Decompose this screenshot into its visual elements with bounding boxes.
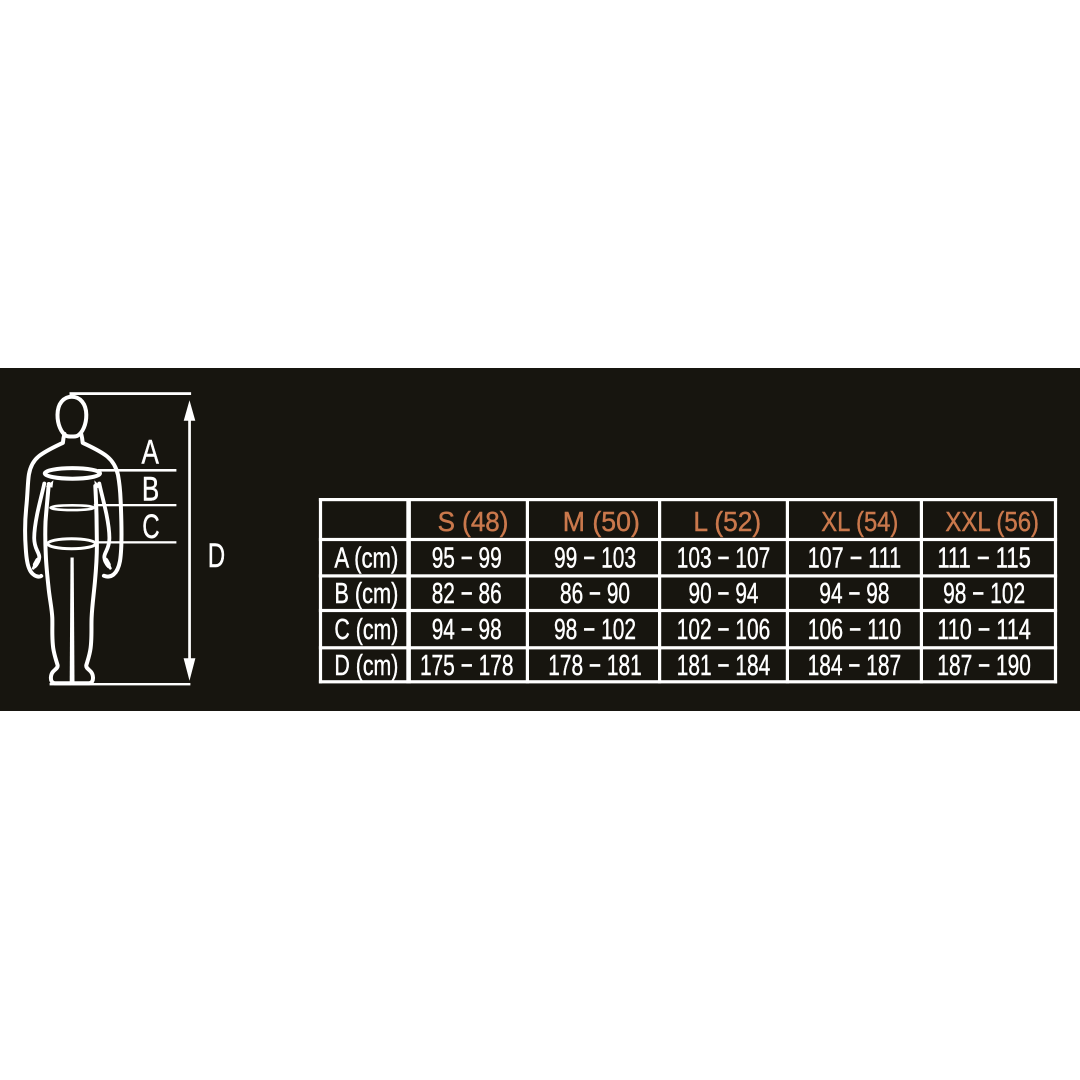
svg-text:C (cm): C (cm) xyxy=(334,614,398,646)
svg-text:S (48): S (48) xyxy=(438,506,509,537)
svg-text:90 − 94: 90 − 94 xyxy=(689,578,759,610)
svg-text:M (50): M (50) xyxy=(563,506,640,537)
svg-text:95 − 99: 95 − 99 xyxy=(432,543,502,575)
svg-text:102 − 106: 102 − 106 xyxy=(677,614,771,646)
svg-text:178 − 181: 178 − 181 xyxy=(548,650,642,682)
svg-text:L (52): L (52) xyxy=(693,506,761,537)
svg-text:94 − 98: 94 − 98 xyxy=(819,578,889,610)
svg-text:107 − 111: 107 − 111 xyxy=(808,543,902,575)
svg-text:A (cm): A (cm) xyxy=(334,543,398,575)
svg-text:C: C xyxy=(142,508,159,546)
svg-text:175 − 178: 175 − 178 xyxy=(420,650,514,682)
svg-text:B: B xyxy=(142,471,159,509)
svg-text:A: A xyxy=(142,433,160,471)
svg-text:B (cm): B (cm) xyxy=(334,578,398,610)
svg-text:103 − 107: 103 − 107 xyxy=(677,543,771,575)
svg-text:99 − 103: 99 − 103 xyxy=(554,543,636,575)
svg-text:110 − 114: 110 − 114 xyxy=(937,614,1031,646)
svg-text:XXL (56): XXL (56) xyxy=(945,506,1039,537)
svg-text:98 − 102: 98 − 102 xyxy=(554,614,636,646)
svg-text:98 − 102: 98 − 102 xyxy=(943,578,1025,610)
svg-text:82 − 86: 82 − 86 xyxy=(432,578,502,610)
svg-text:187 − 190: 187 − 190 xyxy=(937,650,1031,682)
svg-text:181 − 184: 181 − 184 xyxy=(677,650,771,682)
svg-text:D (cm): D (cm) xyxy=(334,650,398,682)
svg-text:94 − 98: 94 − 98 xyxy=(432,614,502,646)
svg-text:184 − 187: 184 − 187 xyxy=(808,650,902,682)
svg-text:XL (54): XL (54) xyxy=(821,506,898,537)
svg-text:86 − 90: 86 − 90 xyxy=(560,578,630,610)
svg-text:106 − 110: 106 − 110 xyxy=(808,614,902,646)
svg-text:D: D xyxy=(208,537,225,575)
svg-text:111 − 115: 111 − 115 xyxy=(937,543,1031,575)
